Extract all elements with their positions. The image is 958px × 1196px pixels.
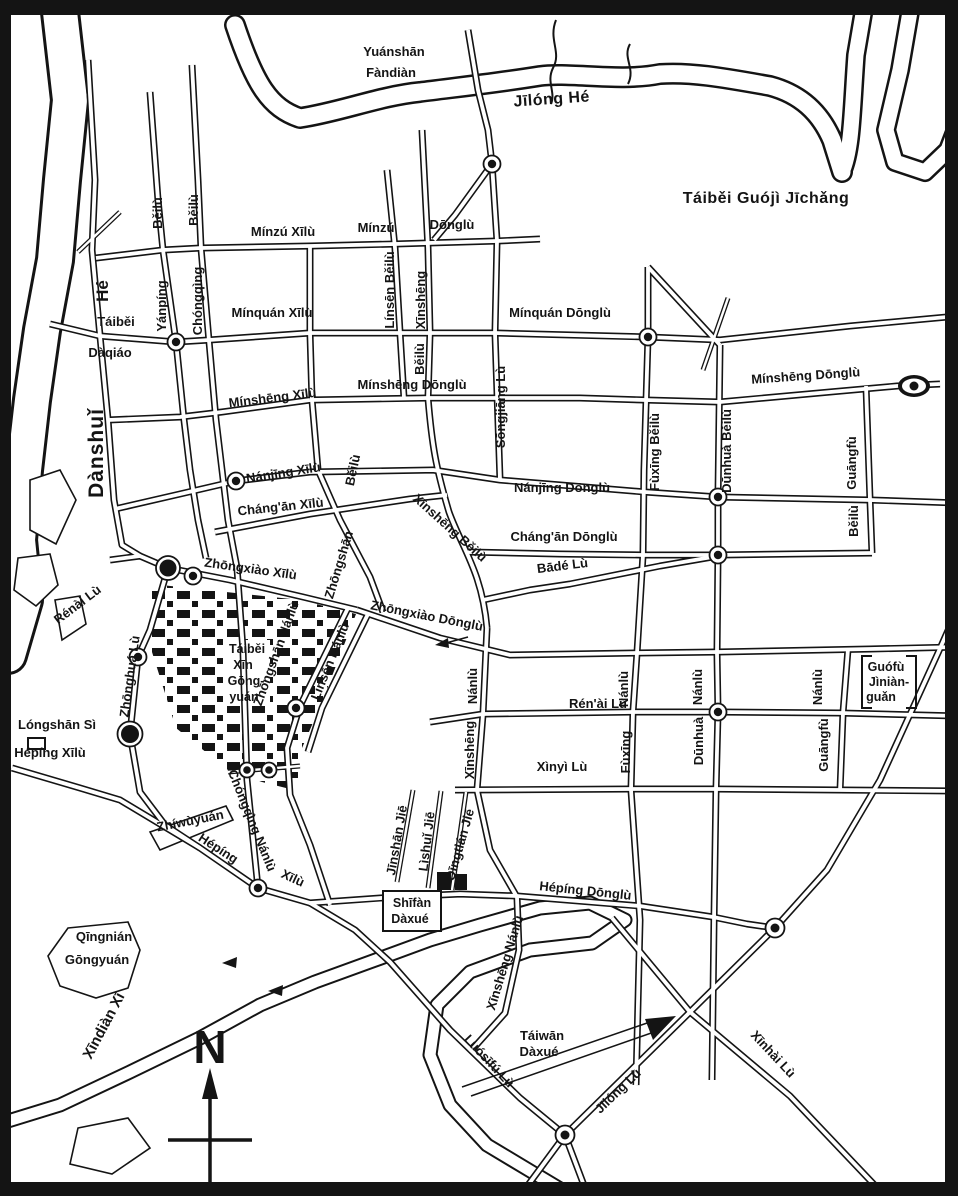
road-label-bade-lu: Bādé Lù <box>536 555 589 576</box>
river-label-xindian-xi: Xīndiàn Xī <box>79 989 128 1062</box>
road-label-dunhua-nanlu: Dūnhuà <box>691 716 706 765</box>
road-label-luosifu-lu: Luósīfú Lù <box>461 1032 517 1091</box>
map-canvas: Jīlóng Hé Yuánshān Fàndiàn Táiběi Guójì … <box>0 0 958 1196</box>
road-label-chongqing-beilu: Běilù <box>186 194 201 226</box>
road-label-yanping: Yánpíng <box>154 280 169 331</box>
road-label-minquan-donglu: Mínquán Dōnglù <box>509 305 611 320</box>
river-label-danshui: Dànshuǐ <box>85 408 108 498</box>
minsheng-east-terminus-marker <box>898 375 930 397</box>
poi-label-sun-yat-sen-memorial: guǎn <box>866 690 896 704</box>
road-label-guangfu-nanlu: Nánlù <box>810 669 825 705</box>
road-label-zhongshan: Zhōngshān <box>321 529 356 600</box>
road-label-nanjing-donglu: Nánjīng Dōnglù <box>514 480 610 495</box>
road-label-xinsheng-beilu-diag: Xīnshēng Běilù <box>410 491 490 565</box>
road-label-chongqing: Chóngqìng <box>190 267 205 336</box>
road-label-xinsheng-beilu: Běilù <box>412 343 427 375</box>
road-label-qingtian-jie: Qīngtián Jiē <box>442 807 477 883</box>
road-label-songjiang-lu: Sōngjiāng Lù <box>493 366 508 448</box>
poi-label-taiwan-university: Dàxué <box>519 1044 558 1059</box>
poi-label-youth-park: Qīngnián <box>76 929 132 944</box>
river-label-jilong-he: Jīlóng Hé <box>513 88 591 110</box>
road-label-guangfu: Guāngfù <box>844 436 859 489</box>
river-jilong <box>235 8 864 172</box>
road-label-xinhai-lu: Xīnhài Lù <box>748 1027 799 1080</box>
road-label-fuxing-nanlu: Fùxīng <box>618 731 633 774</box>
road-label-fuxing-nanlu: Nánlù <box>616 671 631 707</box>
poi-label-normal-university: Dàxué <box>391 912 429 926</box>
road-label-jilong-lu: Jīlóng Lù <box>592 1065 644 1116</box>
poi-label-taipei-new-park: Táiběi <box>229 642 265 656</box>
taipei-street-map: Jīlóng Hé Yuánshān Fàndiàn Táiběi Guójì … <box>0 0 958 1196</box>
road-label-minsheng-donglu: Mínshēng Dōnglù <box>357 377 466 392</box>
poi-label-sun-yat-sen-memorial: Jìniàn- <box>869 675 909 689</box>
compass-rose <box>168 1068 252 1182</box>
poi-label-sun-yat-sen-memorial: Guófù <box>868 660 905 674</box>
poi-label-normal-university: Shīfàn <box>393 896 431 910</box>
road-label-zhongshan-beilu: Běilù <box>342 453 363 487</box>
road-label-xilu: Xīlù <box>279 866 307 890</box>
river-island <box>30 470 76 544</box>
river-island <box>70 1118 150 1174</box>
road-label-minsheng-donglu-east: Mínshēng Dōnglù <box>751 364 861 387</box>
road-label-guangfu-nanlu: Guāngfù <box>816 718 831 771</box>
road-label-xinyi-lu: Xìnyì Lù <box>537 759 588 774</box>
road-label-guangfu-beilu: Běilù <box>846 505 861 537</box>
road-label-xinsheng-nanlu: Nánlù <box>465 668 480 704</box>
road-label-minquan-xilu: Mínquán Xīlù <box>232 305 313 320</box>
river-flow-arrow <box>222 957 237 968</box>
river-label-he: Hé <box>93 280 112 302</box>
road-label-yanping-beilu: Běilù <box>150 197 165 229</box>
road-label-minzu-xilu: Mínzú Xīlù <box>251 224 315 239</box>
road-label-dunhua-beilu: Dūnhuà Běilù <box>719 409 734 493</box>
poi-label-youth-park: Gōngyuán <box>65 952 129 967</box>
poi-label-yuanshan-fandian: Fàndiàn <box>366 65 416 80</box>
road-label-nanjing-xilu: Nánjīng Xīlù <box>245 459 322 486</box>
poi-label-taiwan-university: Táiwān <box>520 1028 564 1043</box>
road-label-zhongxiao-donglu: Zhōngxiào Dōnglù <box>369 597 484 634</box>
road-label-xinsheng-beilu: Xīnshēng <box>413 271 428 330</box>
road-label-xinsheng-nanlu: Xīnshēng <box>462 721 477 780</box>
road-label-dunhua-nanlu: Nánlù <box>690 669 705 705</box>
compass-north-label: N <box>193 1021 226 1073</box>
poi-label-taipei-bridge: Dàqiáo <box>88 345 131 360</box>
road-label-minzu-donglu: Dōnglù <box>430 217 475 232</box>
poi-label-airport: Táiběi Guójì Jīchǎng <box>683 190 849 207</box>
road-label-heping-xilu: Hépíng Xīlù <box>14 745 86 760</box>
poi-label-yuanshan-fandian: Yuánshān <box>363 44 424 59</box>
road-label-minzu: Mínzú <box>358 220 395 235</box>
poi-label-taipei-bridge: Táiběi <box>97 314 135 329</box>
poi-label-longshan-temple: Lóngshān Sì <box>18 717 96 732</box>
road-label-fuxing-beilu: Fùxīng Běilù <box>647 413 662 491</box>
road-label-linsen-beilu: Línsēn Běilù <box>382 251 397 328</box>
poi-label-taipei-new-park: Xīn <box>233 658 252 672</box>
road-label-changan-donglu: Cháng'ān Dōnglù <box>510 529 617 544</box>
